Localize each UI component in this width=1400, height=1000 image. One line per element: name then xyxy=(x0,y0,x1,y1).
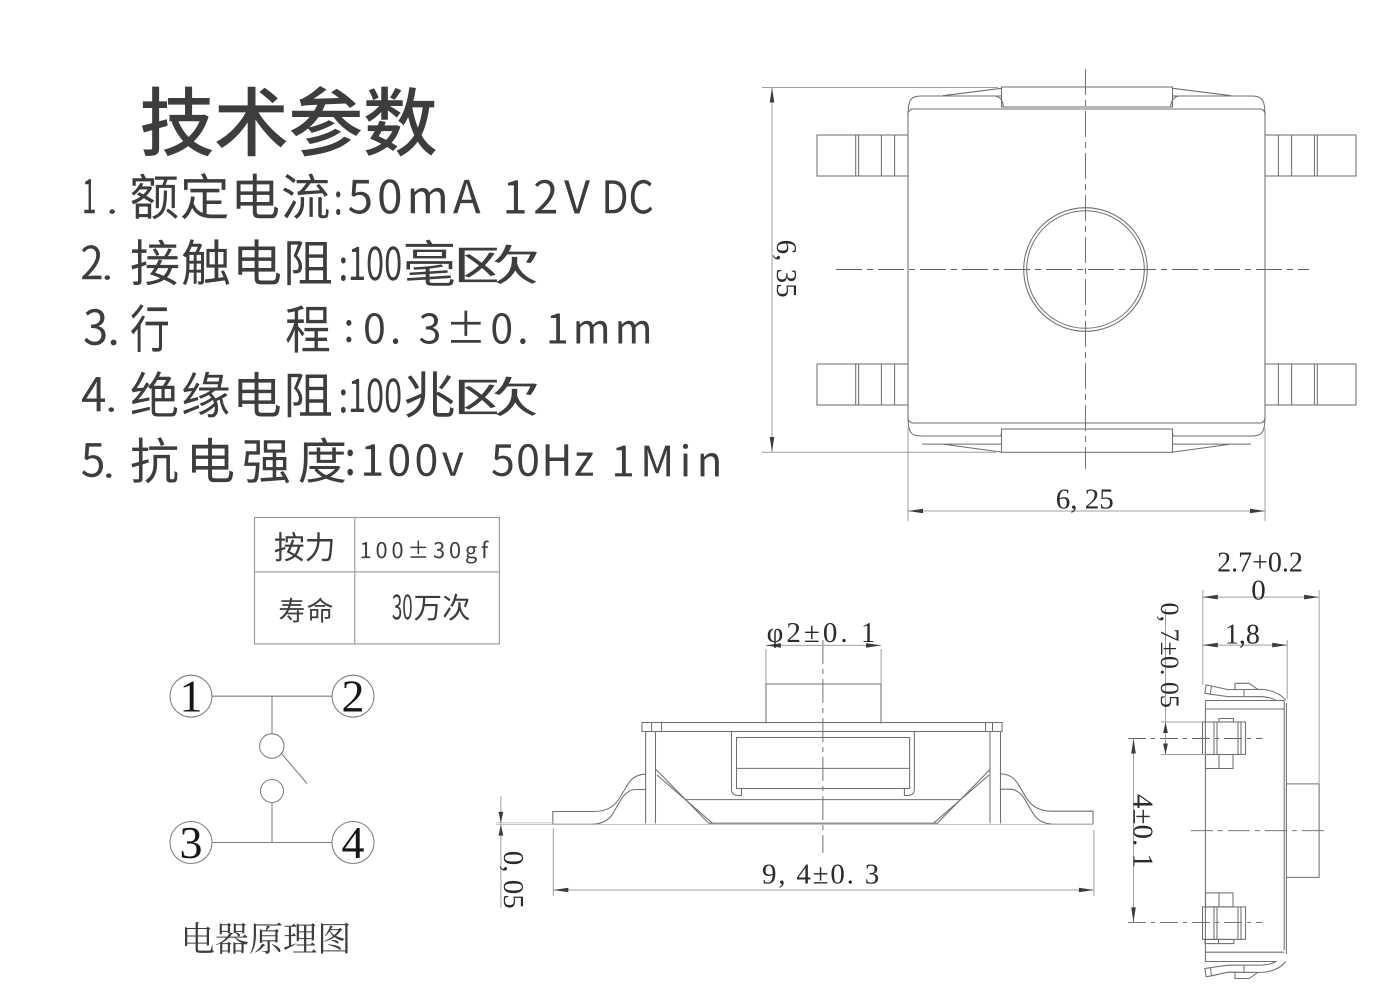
svg-text:4: 4 xyxy=(342,817,365,868)
svg-text:0, 05: 0, 05 xyxy=(497,851,529,909)
svg-text:1,8: 1,8 xyxy=(1225,620,1260,651)
svg-text:6, 35: 6, 35 xyxy=(770,240,802,298)
svg-text:3: 3 xyxy=(180,817,203,868)
svg-text:6, 25: 6, 25 xyxy=(1056,484,1114,516)
svg-text:2: 2 xyxy=(342,671,365,722)
svg-text:1: 1 xyxy=(180,671,203,722)
svg-text:φ2±0. 1: φ2±0. 1 xyxy=(767,617,879,649)
svg-text:9, 4±0. 3: 9, 4±0. 3 xyxy=(762,859,881,891)
svg-text:0: 0 xyxy=(1251,575,1266,607)
svg-text:0, 7±0. 05: 0, 7±0. 05 xyxy=(1155,603,1184,708)
svg-text:4±0. 1: 4±0. 1 xyxy=(1127,794,1159,868)
